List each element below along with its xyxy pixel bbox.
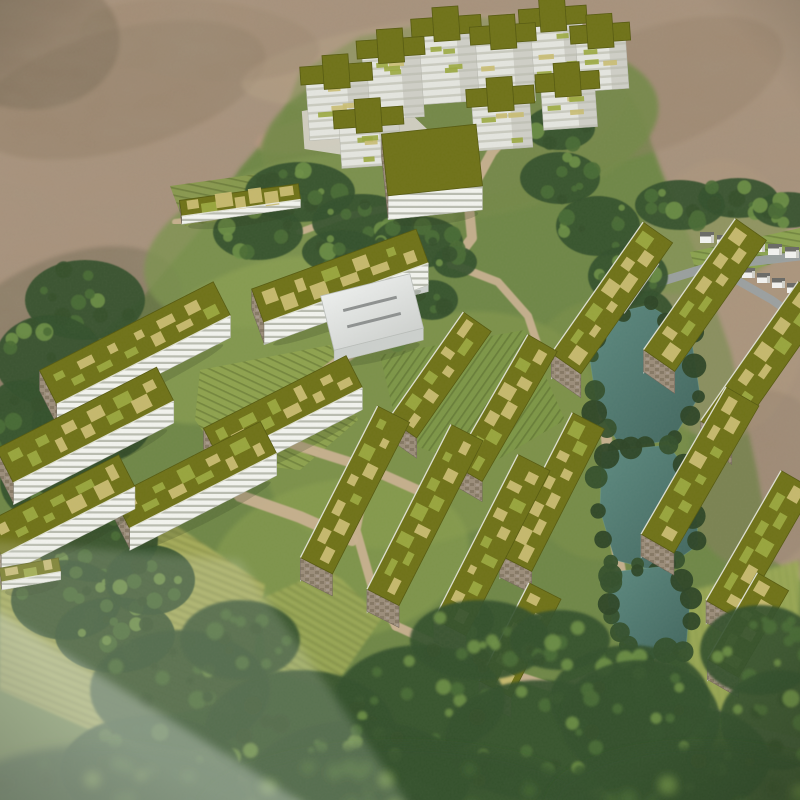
vignette	[0, 0, 800, 800]
scene-layers	[0, 0, 800, 800]
scene-svg	[0, 0, 800, 800]
masterplan-rendering	[0, 0, 800, 800]
